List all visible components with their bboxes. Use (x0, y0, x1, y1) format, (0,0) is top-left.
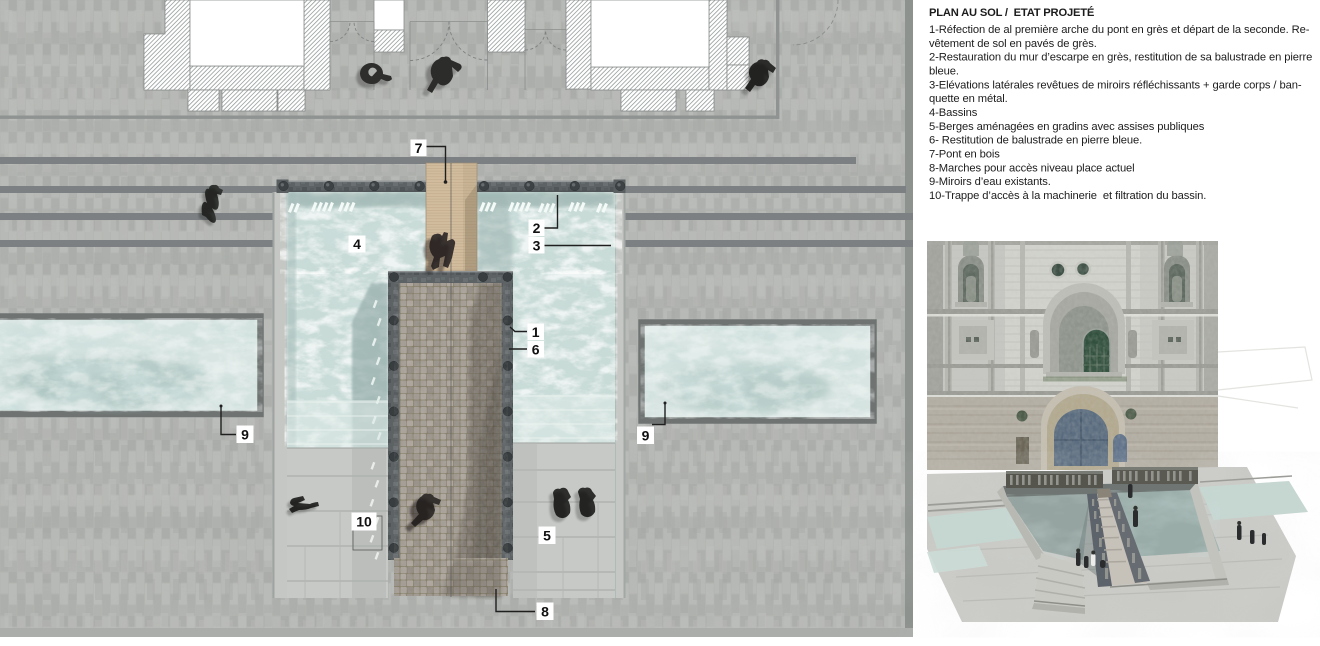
svg-text:9: 9 (642, 427, 650, 443)
svg-text:5-Berges aménagées en gradins: 5-Berges aménagées en gradins avec assis… (929, 121, 1205, 133)
svg-text:10: 10 (356, 514, 372, 530)
svg-text:vêtement de sol en pavés de gr: vêtement de sol en pavés de grès. (929, 38, 1097, 50)
svg-text:5: 5 (543, 527, 551, 543)
svg-text:quette en métal.: quette en métal. (929, 93, 1008, 105)
svg-text:10-Trappe d’accès à la machine: 10-Trappe d’accès à la machinerie et fil… (929, 190, 1206, 202)
svg-text:9: 9 (241, 426, 249, 442)
svg-text:3-Elévations latérales revêtue: 3-Elévations latérales revêtues de miroi… (929, 79, 1302, 91)
svg-text:2-Restauration du mur d’escarp: 2-Restauration du mur d’escarpe en grès,… (929, 52, 1312, 64)
svg-text:3: 3 (533, 237, 541, 253)
svg-text:2: 2 (533, 220, 541, 236)
svg-text:1: 1 (532, 324, 540, 340)
svg-text:9-Miroirs d’eau existants.: 9-Miroirs d’eau existants. (929, 176, 1051, 188)
svg-text:8-Marches pour accès niveau pl: 8-Marches pour accès niveau place actuel (929, 162, 1135, 174)
svg-text:8: 8 (541, 603, 549, 619)
svg-text:7: 7 (415, 140, 423, 156)
svg-text:6- Restitution de balustrade e: 6- Restitution de balustrade en pierre b… (929, 135, 1142, 147)
svg-text:PLAN AU SOL / ETAT PROJETÉ: PLAN AU SOL / ETAT PROJETÉ (929, 6, 1095, 19)
svg-text:4-Bassins: 4-Bassins (929, 107, 978, 119)
svg-text:bleue.: bleue. (929, 66, 959, 78)
svg-text:7-Pont en bois: 7-Pont en bois (929, 149, 1000, 161)
svg-text:1-Réfection de al première arc: 1-Réfection de al première arche du pont… (929, 24, 1310, 36)
svg-text:4: 4 (353, 236, 361, 252)
svg-text:6: 6 (532, 341, 540, 357)
